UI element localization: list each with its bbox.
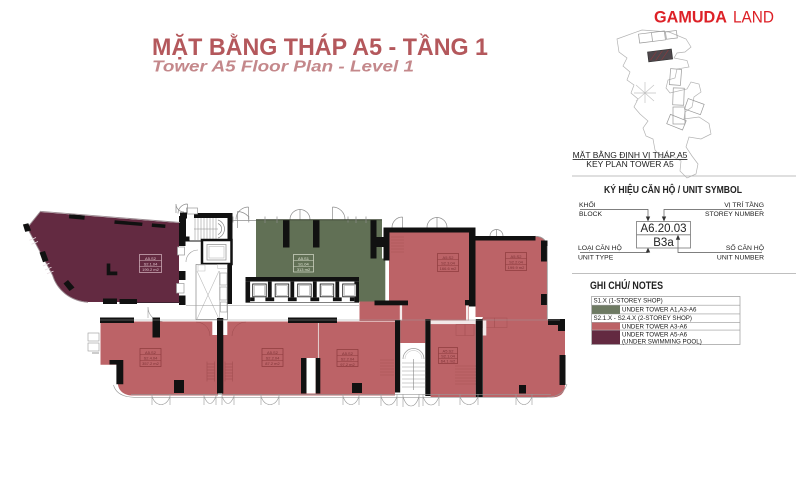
svg-text:S1.04: S1.04 [298,262,309,267]
svg-text:GHI CHÚ/ NOTES: GHI CHÚ/ NOTES [590,279,663,292]
svg-text:190.2 m2: 190.2 m2 [142,267,159,272]
svg-text:UNIT NUMBER: UNIT NUMBER [717,255,764,262]
svg-text:UNDER TOWER A1,A3-A6: UNDER TOWER A1,A3-A6 [622,307,697,314]
svg-text:(UNDER SWIMMING POOL): (UNDER SWIMMING POOL) [622,339,702,346]
svg-text:UNDER TOWER A3-A6: UNDER TOWER A3-A6 [622,323,688,330]
svg-text:S2.4.04: S2.4.04 [144,356,159,361]
svg-text:S2.1.04: S2.1.04 [144,262,159,267]
svg-text:87.2 m2: 87.2 m2 [265,361,280,366]
svg-text:KÝ HIỆU CĂN HỘ / UNIT SYMBOL: KÝ HIỆU CĂN HỘ / UNIT SYMBOL [604,183,742,196]
svg-text:KEY PLAN TOWER A5: KEY PLAN TOWER A5 [586,159,674,169]
svg-text:357.2 m2: 357.2 m2 [142,361,159,366]
svg-text:97.2 m2: 97.2 m2 [340,362,355,367]
svg-text:BLOCK: BLOCK [579,211,603,218]
svg-text:Tower A5 Floor Plan - Level 1: Tower A5 Floor Plan - Level 1 [152,59,414,76]
svg-text:STOREY NUMBER: STOREY NUMBER [705,211,764,218]
svg-text:A6.20.03: A6.20.03 [640,223,686,235]
svg-text:S2.2.04: S2.2.04 [509,260,524,265]
svg-text:S2.3.04: S2.3.04 [441,261,456,266]
svg-text:S2.2.04: S2.2.04 [341,357,356,362]
svg-text:313 m2: 313 m2 [297,267,311,272]
svg-text:S2.2.04: S2.2.04 [266,356,281,361]
svg-text:199.9 m2: 199.9 m2 [508,265,525,270]
svg-text:LAND: LAND [733,9,774,27]
svg-text:166.6 m2: 166.6 m2 [440,266,457,271]
svg-text:B3a: B3a [653,237,674,249]
svg-text:UNDER TOWER A5-A6: UNDER TOWER A5-A6 [622,332,688,339]
svg-text:64.1 m2: 64.1 m2 [441,359,456,364]
svg-text:MẶT BẰNG THÁP A5 - TẦNG 1: MẶT BẰNG THÁP A5 - TẦNG 1 [152,33,488,61]
svg-text:LOẠI CĂN HỘ: LOẠI CĂN HỘ [578,243,622,252]
svg-text:UNIT TYPE: UNIT TYPE [578,255,614,262]
svg-text:GAMUDA: GAMUDA [654,9,727,27]
svg-text:S2.1.X - S2.4.X (2-STOREY SHOP: S2.1.X - S2.4.X (2-STOREY SHOP) [594,315,692,322]
svg-text:S1.X (1-STOREY SHOP): S1.X (1-STOREY SHOP) [594,298,663,305]
